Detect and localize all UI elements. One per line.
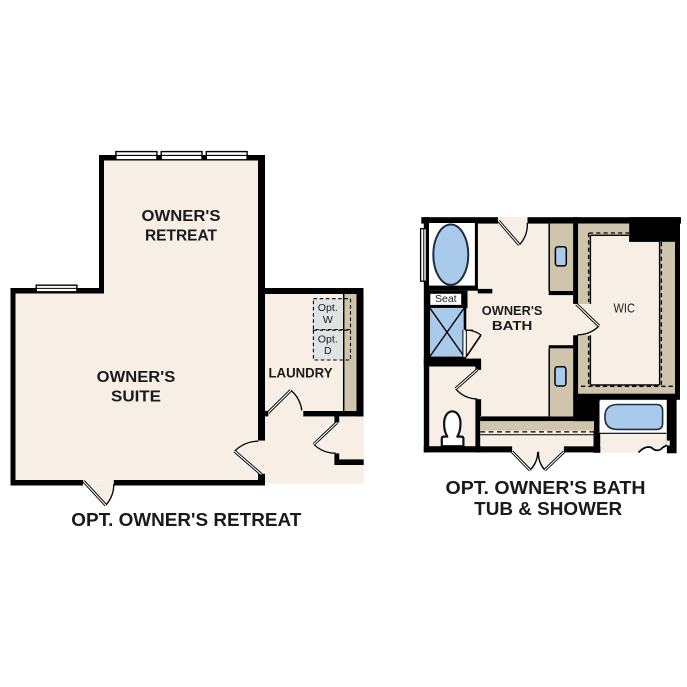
svg-text:TUB & SHOWER: TUB & SHOWER	[474, 498, 622, 519]
svg-text:OWNER'S: OWNER'S	[97, 369, 176, 386]
svg-text:OWNER'S: OWNER'S	[142, 208, 221, 225]
svg-text:Seat: Seat	[435, 293, 457, 305]
svg-text:Opt.: Opt.	[318, 302, 338, 314]
svg-text:LAUNDRY: LAUNDRY	[269, 364, 334, 380]
svg-text:D: D	[324, 345, 332, 357]
svg-text:Opt.: Opt.	[318, 333, 338, 345]
svg-text:W: W	[323, 314, 333, 326]
svg-text:OPT. OWNER'S BATH: OPT. OWNER'S BATH	[446, 477, 646, 498]
svg-text:RETREAT: RETREAT	[145, 228, 217, 245]
svg-text:BATH: BATH	[492, 318, 532, 333]
svg-text:OPT. OWNER'S RETREAT: OPT. OWNER'S RETREAT	[71, 509, 302, 530]
svg-text:SUITE: SUITE	[111, 389, 161, 406]
svg-text:WIC: WIC	[614, 302, 635, 316]
svg-text:OWNER'S: OWNER'S	[482, 303, 543, 318]
